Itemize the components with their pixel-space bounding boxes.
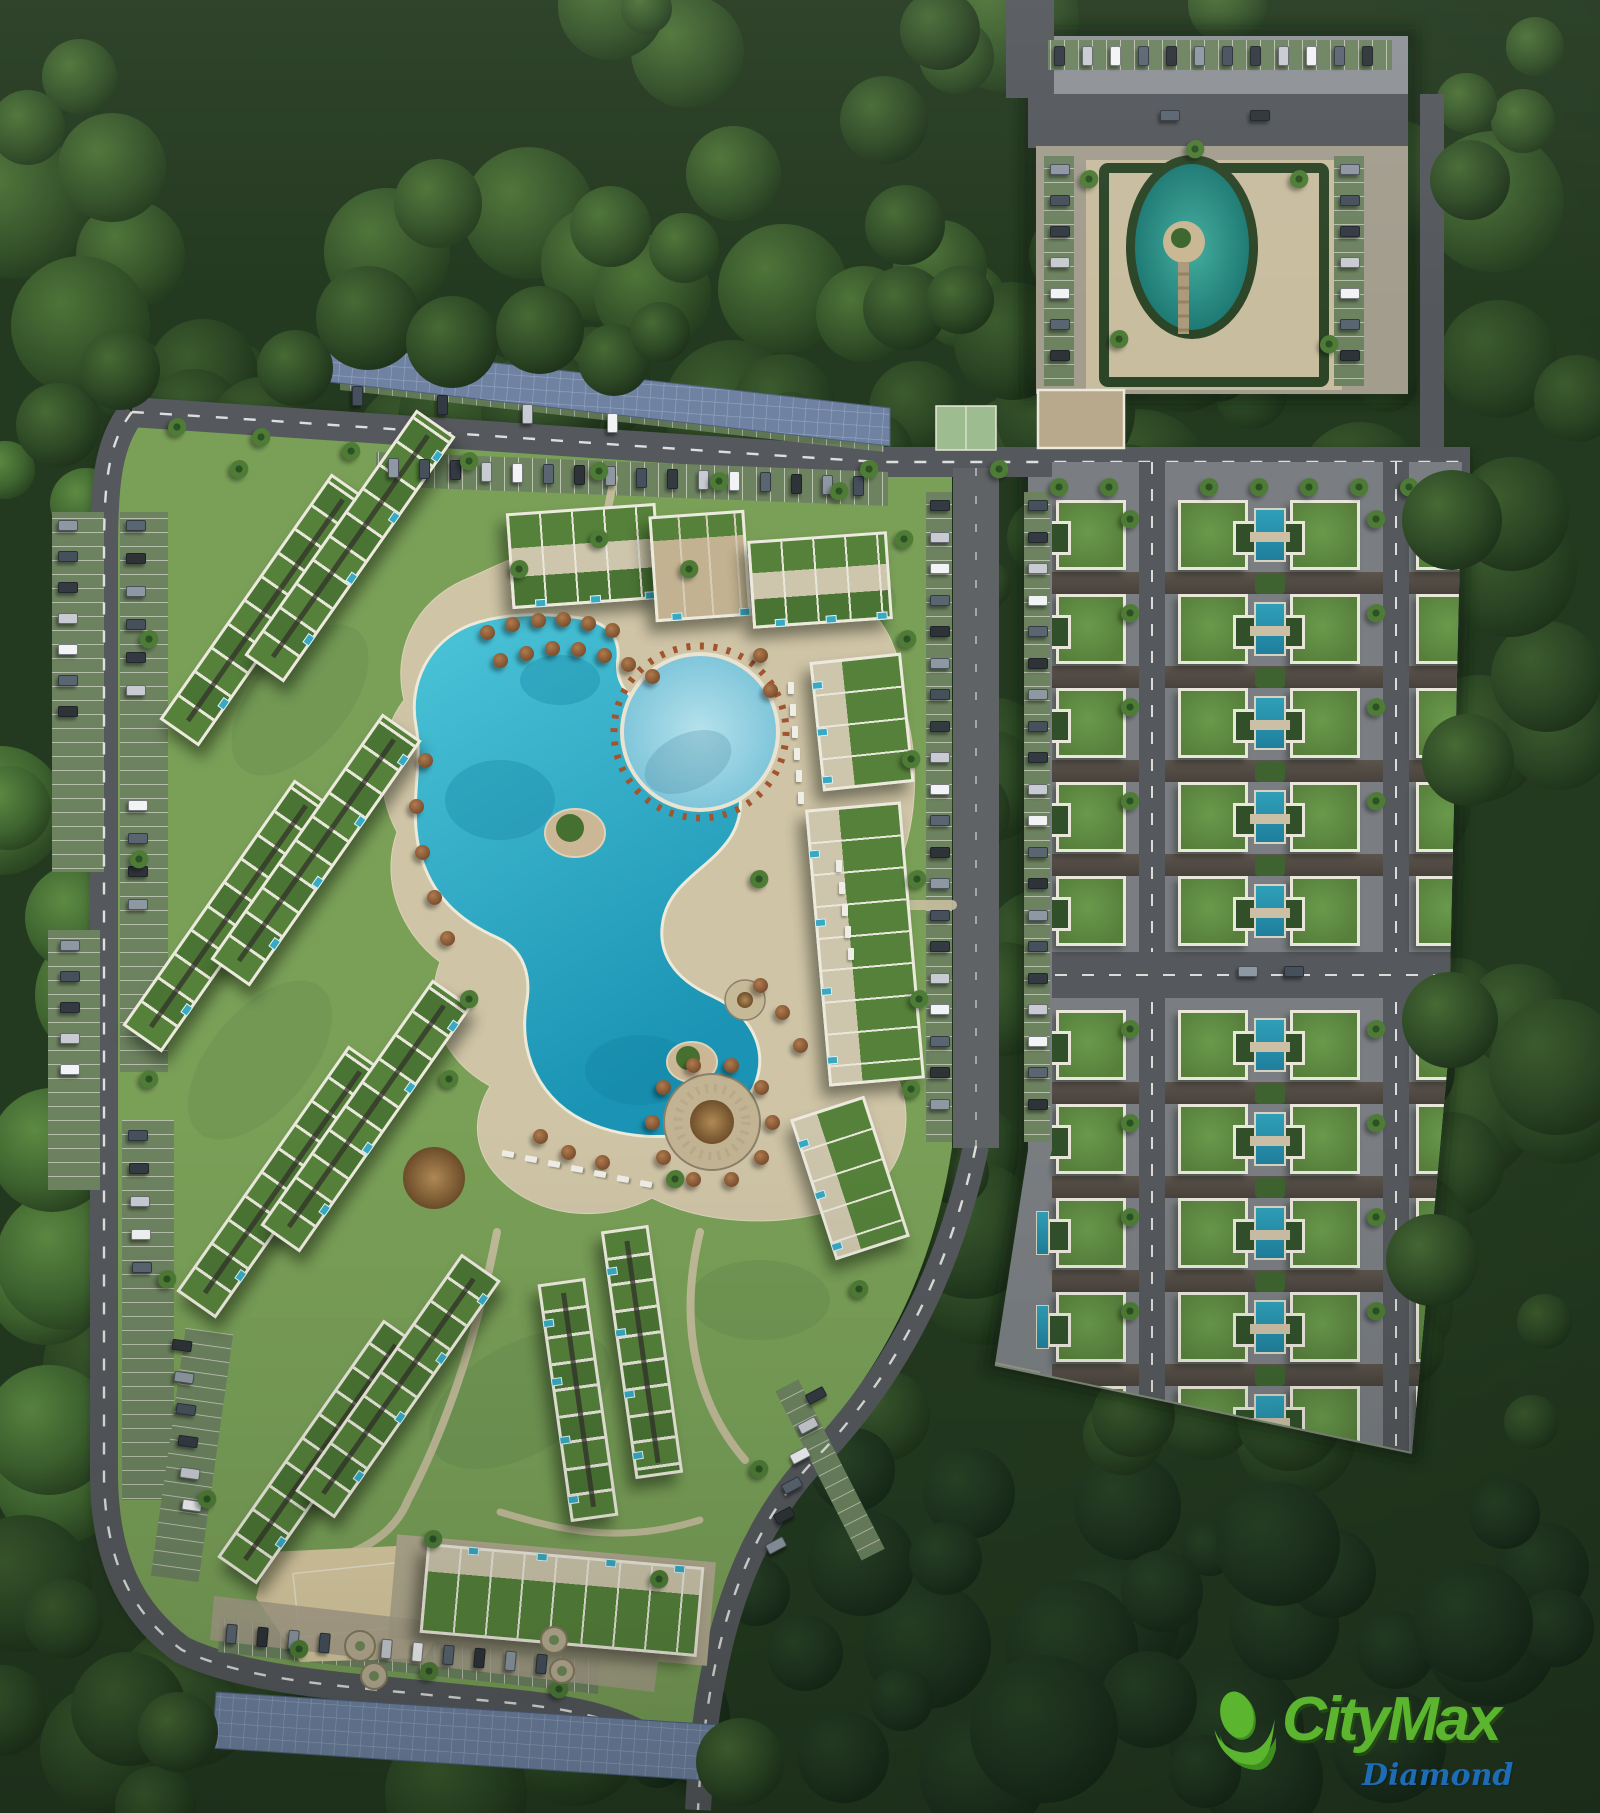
parked-car: [225, 1624, 238, 1645]
forest-canopy-overhang: [0, 0, 1600, 1813]
beach-volleyball-court: [293, 1563, 403, 1638]
forest-tree: [947, 942, 1061, 1056]
palm-tree: [252, 428, 272, 448]
palm-tree: [1367, 604, 1387, 624]
parked-car: [1340, 257, 1360, 268]
palm-tree: [440, 1070, 460, 1090]
forest-tree: [1056, 1197, 1179, 1320]
private-plunge-pool: [431, 450, 444, 464]
sun-lounger: [548, 1160, 561, 1168]
forest-tree: [1236, 1376, 1355, 1495]
parked-car: [1054, 46, 1065, 66]
parked-car: [1028, 1036, 1048, 1047]
private-plunge-pool: [739, 608, 751, 617]
forest-tree: [1216, 1482, 1340, 1606]
palapa-umbrella: [763, 683, 778, 698]
parked-car: [1050, 350, 1070, 361]
citymax-logo: CityMax Diamond: [1204, 1682, 1584, 1802]
private-plunge-pool: [318, 1203, 331, 1217]
private-plunge-pool: [346, 514, 359, 528]
forest-tree: [164, 1123, 218, 1177]
forest-tree: [335, 927, 465, 1057]
forest-tree: [848, 639, 953, 744]
forest-tree: [411, 470, 513, 572]
parked-car: [60, 1002, 80, 1013]
entry-pond: [1135, 164, 1249, 330]
forest-tree: [76, 200, 185, 309]
villa-unit: [1056, 1386, 1126, 1456]
parked-car: [805, 1386, 828, 1405]
parked-car: [930, 847, 950, 858]
villa-lap-pool: [1254, 884, 1286, 938]
forest-tree: [923, 1447, 1015, 1539]
private-plunge-pool: [217, 697, 230, 711]
sun-lounger: [845, 926, 851, 938]
forest-tree: [1517, 1294, 1572, 1349]
palapa-umbrella: [656, 1150, 671, 1165]
forest-tree: [1115, 644, 1195, 724]
private-plunge-pool: [277, 1208, 290, 1222]
forest-tree: [481, 350, 602, 471]
parked-car: [1028, 1099, 1048, 1110]
forest-tree: [548, 453, 620, 525]
forest-tree: [230, 1630, 312, 1712]
forest-tree: [185, 952, 244, 1011]
palapa-umbrella: [621, 657, 636, 672]
parked-car: [131, 1229, 151, 1240]
forest-tree: [572, 585, 673, 686]
forest-tree: [11, 256, 150, 395]
forest-tree: [902, 1161, 1040, 1299]
private-plunge-pool: [551, 1377, 563, 1386]
parked-car: [667, 469, 678, 489]
private-plunge-pool: [812, 681, 824, 690]
parked-car: [171, 1339, 192, 1353]
forest-tree: [1124, 478, 1208, 562]
parked-car: [1028, 752, 1048, 763]
forest-tree: [816, 266, 912, 362]
jungle-forest-background: [0, 0, 1600, 1813]
parking-stalls: [1334, 156, 1364, 386]
forest-tree: [594, 235, 711, 352]
resort-grass: [104, 412, 952, 1780]
forest-tree: [1489, 999, 1600, 1135]
forest-tree: [1338, 1251, 1453, 1366]
palm-tree: [590, 462, 610, 482]
forest-tree: [385, 1722, 527, 1813]
sun-lounger: [792, 726, 798, 738]
parked-car: [126, 520, 146, 531]
forest-tree: [1356, 350, 1418, 412]
forest-tree: [836, 413, 912, 489]
forest-tree: [1294, 921, 1373, 1000]
forest-tree: [1007, 498, 1086, 577]
parked-car: [930, 721, 950, 732]
palapa-umbrella: [754, 1150, 769, 1165]
forest-tree: [566, 349, 627, 410]
pool-strip-walkway: [1250, 1230, 1290, 1240]
villa-driveway-band: [1165, 854, 1383, 876]
forest-tree: [146, 1624, 198, 1676]
forest-tree: [486, 205, 551, 270]
hedge: [1104, 168, 1324, 382]
round-deck: [725, 980, 765, 1020]
forest-tree: [251, 369, 308, 426]
palapa-umbrella: [775, 1005, 790, 1020]
entry-drive: [1028, 94, 1408, 148]
parked-car: [58, 582, 78, 593]
parked-car: [1028, 815, 1048, 826]
parked-car: [605, 466, 616, 486]
forest-tree: [1121, 1550, 1203, 1632]
palm-tree: [1121, 792, 1141, 812]
parked-car: [698, 470, 709, 490]
villa-driveway-band: [1409, 1082, 1462, 1104]
forest-tree: [187, 342, 276, 431]
private-plunge-pool: [397, 754, 410, 768]
forest-tree: [1373, 1313, 1444, 1384]
forest-tree: [1436, 73, 1497, 134]
forest-tree: [148, 319, 258, 429]
forest-tree: [870, 1667, 934, 1731]
private-plunge-pool: [388, 511, 401, 525]
sun-lounger: [836, 860, 842, 872]
parking-stalls: [340, 378, 884, 452]
palm-tree: [1121, 1208, 1141, 1228]
private-plunge-pool: [817, 728, 829, 737]
forest-tree: [1245, 1198, 1300, 1253]
parked-car: [126, 685, 146, 696]
pond-dock: [1178, 262, 1189, 334]
forest-tree: [1207, 1059, 1293, 1145]
palm-tree: [1200, 478, 1220, 498]
forest-tree: [1351, 1177, 1432, 1258]
forest-tree: [1226, 791, 1319, 884]
forest-tree: [733, 354, 834, 455]
forest-tree: [216, 1318, 358, 1460]
forest-tree: [1455, 457, 1569, 571]
parked-car: [781, 1476, 804, 1495]
villa-driveway-band: [1409, 854, 1462, 876]
solar-canopy: [330, 344, 890, 446]
forest-tree: [558, 0, 664, 60]
palapa-umbrella: [571, 642, 586, 657]
villa-driveway-band: [1052, 572, 1139, 594]
parked-car: [1050, 226, 1070, 237]
parked-car: [607, 413, 618, 433]
forest-tree: [1106, 1386, 1166, 1446]
forest-tree: [1094, 989, 1183, 1078]
parked-car: [1028, 941, 1048, 952]
forest-tree: [827, 1078, 896, 1147]
private-plunge-pool: [535, 599, 547, 608]
parked-car: [181, 1499, 202, 1513]
villa-lap-pool: [1036, 889, 1049, 933]
forest-tree: [35, 929, 166, 1060]
forest-tree: [864, 1581, 992, 1709]
palapa-umbrella: [409, 799, 424, 814]
parked-car: [60, 971, 80, 982]
palm-tree: [140, 1070, 160, 1090]
palm-tree: [1186, 140, 1206, 160]
forest-tree: [1317, 536, 1429, 648]
forest-tree: [1159, 236, 1210, 287]
villa-unit: [1056, 594, 1126, 664]
forest-tree: [1010, 281, 1141, 412]
pool-strip-planting: [1255, 762, 1285, 782]
palm-tree: [902, 1080, 922, 1100]
parked-car: [1166, 46, 1177, 66]
parked-car: [128, 1130, 148, 1141]
forest-tree: [685, 859, 802, 976]
parked-car: [760, 472, 771, 492]
palm-tree: [460, 452, 480, 472]
parked-car: [126, 619, 146, 630]
villa-unit: [1416, 594, 1486, 664]
parked-car: [930, 1004, 950, 1015]
parking-plaza: [1036, 146, 1408, 394]
parking-stalls-group: [48, 378, 1050, 1694]
parked-car: [1028, 500, 1048, 511]
parked-car: [1340, 319, 1360, 330]
private-plunge-pool: [830, 1241, 843, 1252]
forest-tree: [58, 113, 166, 221]
villa-unit: [1416, 1198, 1486, 1268]
private-plunge-pool: [468, 1547, 480, 1556]
apartment-building: [790, 1096, 910, 1261]
forest-canopy-tree: [406, 296, 498, 388]
villa-unit: [1178, 1198, 1248, 1268]
forest-tree: [761, 392, 820, 451]
forest-tree: [766, 808, 898, 940]
forest-tree: [1499, 1038, 1600, 1164]
villa-unit: [1416, 500, 1486, 570]
forest-tree: [1092, 1375, 1174, 1457]
forest-tree: [147, 900, 262, 1015]
forest-tree: [1287, 1528, 1377, 1618]
villa-unit: [1056, 1010, 1126, 1080]
palapa-umbrella: [531, 613, 546, 628]
forest-tree: [1238, 1065, 1355, 1182]
villa-driveway-band: [1052, 666, 1139, 688]
forest-tree: [1299, 422, 1422, 545]
parked-car: [60, 1064, 80, 1075]
sun-lounger: [794, 748, 800, 760]
forest-tree: [794, 540, 888, 634]
private-plunge-pool: [311, 876, 324, 890]
villa-lap-pool: [1254, 1112, 1286, 1166]
parked-car: [853, 476, 864, 496]
forest-tree: [454, 782, 577, 905]
forest-tree: [218, 951, 277, 1010]
forest-tree: [1127, 1171, 1244, 1288]
forest-tree: [1504, 1395, 1559, 1450]
forest-tree: [0, 746, 65, 875]
villa-lap-pool: [1254, 696, 1286, 750]
pool-strip-planting: [1255, 1366, 1285, 1386]
plaza-east-road: [1420, 94, 1444, 466]
parked-car: [128, 866, 148, 877]
forest-tree: [1491, 89, 1555, 153]
palapa-umbrella: [519, 646, 534, 661]
private-plunge-pool: [814, 1189, 827, 1200]
forest-tree: [1151, 631, 1239, 719]
parked-car: [450, 460, 461, 480]
pool-strip-walkway: [1250, 814, 1290, 824]
private-plunge-pool: [316, 1477, 329, 1491]
forest-tree: [163, 1310, 304, 1451]
apartment-building: [244, 409, 455, 682]
forest-tree: [224, 1250, 300, 1326]
private-plunge-pool: [303, 575, 316, 589]
forest-tree: [0, 766, 51, 850]
forest-tree: [1415, 675, 1542, 802]
forest-tree: [1031, 1087, 1084, 1140]
parking-stalls: [775, 1379, 884, 1560]
apartment-building: [506, 503, 662, 609]
palm-tree: [550, 1680, 570, 1700]
forest-tree: [471, 1559, 522, 1610]
forest-tree: [1184, 638, 1273, 727]
road-dashes: [104, 412, 1470, 1810]
forest-tree: [718, 224, 847, 353]
forest-tree: [818, 667, 945, 794]
pool-strip-planting: [1255, 856, 1285, 876]
palm-tree: [850, 1280, 870, 1300]
forest-tree: [1181, 1520, 1237, 1576]
villa-unit: [1178, 782, 1248, 852]
palm-tree: [198, 1490, 218, 1510]
forest-tree: [1067, 409, 1211, 553]
palapa-umbrella: [597, 648, 612, 663]
forest-tree: [1216, 736, 1291, 811]
palm-shadow-on-pool: [634, 717, 741, 807]
villa-lap-pool: [1254, 508, 1286, 562]
forest-tree: [0, 131, 89, 279]
villa-unit: [1416, 1292, 1486, 1362]
private-plunge-pool: [309, 820, 322, 834]
parked-car: [1028, 847, 1048, 858]
forest-tree: [1237, 1365, 1343, 1471]
villa-unit: [1416, 1104, 1486, 1174]
palm-tree: [1100, 478, 1120, 498]
bar-seating-ring: [678, 1088, 746, 1156]
forest-tree: [922, 1103, 1020, 1201]
palm-tree: [666, 1170, 686, 1190]
parked-car: [1050, 195, 1070, 206]
villa-unit: [1178, 1010, 1248, 1080]
forest-tree: [934, 0, 1078, 92]
forest-tree: [1466, 964, 1569, 1067]
villa-driveway-band: [1052, 1270, 1139, 1292]
parked-car: [60, 1033, 80, 1044]
forest-tree: [1214, 175, 1326, 287]
villa-driveway-band: [1409, 572, 1462, 594]
parked-car: [1028, 658, 1048, 669]
round-kids-pool: [622, 654, 778, 810]
villa-lap-pool: [1036, 513, 1049, 557]
villa-driveway-band: [1165, 1176, 1383, 1198]
villa-unit: [1056, 1198, 1126, 1268]
sun-lounger: [839, 882, 845, 894]
villa-driveway-band: [1052, 760, 1139, 782]
palapa-umbrella: [418, 753, 433, 768]
parked-car: [930, 658, 950, 669]
parked-car: [636, 468, 647, 488]
private-plunge-pool: [615, 1328, 627, 1337]
solar-canopy: [212, 1692, 764, 1784]
pool-island: [545, 809, 605, 857]
forest-canopy-tree: [1402, 972, 1498, 1068]
villa-unit: [1290, 594, 1360, 664]
sand-beach-area: [256, 1544, 456, 1662]
forest-tree: [0, 90, 65, 166]
parked-car: [1028, 689, 1048, 700]
forest-tree: [92, 341, 176, 425]
villa-unit: [1056, 1104, 1126, 1174]
parked-car: [1340, 350, 1360, 361]
parked-car: [411, 1642, 424, 1663]
villa-district-ground: [995, 462, 1462, 1452]
villa-driveway-band: [1165, 572, 1383, 594]
private-plunge-pool: [320, 1147, 333, 1161]
forest-tree: [533, 327, 651, 445]
parked-car: [535, 1654, 548, 1675]
forest-tree: [162, 539, 215, 592]
forest-tree: [1119, 268, 1222, 371]
forest-tree: [210, 377, 313, 480]
parked-car: [58, 520, 78, 531]
forest-tree: [801, 892, 924, 1015]
parked-car: [129, 1163, 149, 1174]
forest-tree: [563, 359, 623, 419]
parked-car: [58, 675, 78, 686]
private-plunge-pool: [536, 1553, 548, 1562]
pond-island-planting: [1171, 228, 1191, 248]
forest-tree: [622, 894, 759, 1031]
forest-tree: [1413, 1563, 1533, 1683]
villa-unit: [1056, 500, 1126, 570]
palm-tree: [1121, 1020, 1141, 1040]
footpaths: [300, 478, 952, 1566]
forest-tree: [1103, 487, 1165, 549]
parked-car: [128, 833, 148, 844]
palm-tree: [1320, 335, 1340, 355]
parked-car: [1278, 46, 1289, 66]
private-plunge-pool: [774, 619, 786, 628]
pool-island-planting: [556, 814, 584, 842]
parking-stalls: [218, 1618, 600, 1694]
parked-car: [58, 706, 78, 717]
forest-tree: [636, 903, 687, 954]
forest-canopy-tree: [1386, 1214, 1478, 1306]
parked-car: [512, 463, 523, 483]
villa-unit: [1056, 876, 1126, 946]
palm-tree: [1290, 170, 1310, 190]
parked-car: [419, 459, 430, 479]
private-plunge-pool: [815, 918, 827, 927]
apartment-building: [176, 1045, 387, 1318]
forest-tree: [631, 0, 744, 108]
forest-tree: [1400, 1043, 1537, 1180]
bar-thatch-roof: [690, 1100, 734, 1144]
parked-car: [930, 973, 950, 984]
parked-car: [1306, 46, 1317, 66]
forest-tree: [742, 543, 855, 656]
parked-car: [473, 1648, 486, 1669]
apartment-building: [805, 801, 925, 1086]
villa-unit: [1178, 1386, 1248, 1456]
